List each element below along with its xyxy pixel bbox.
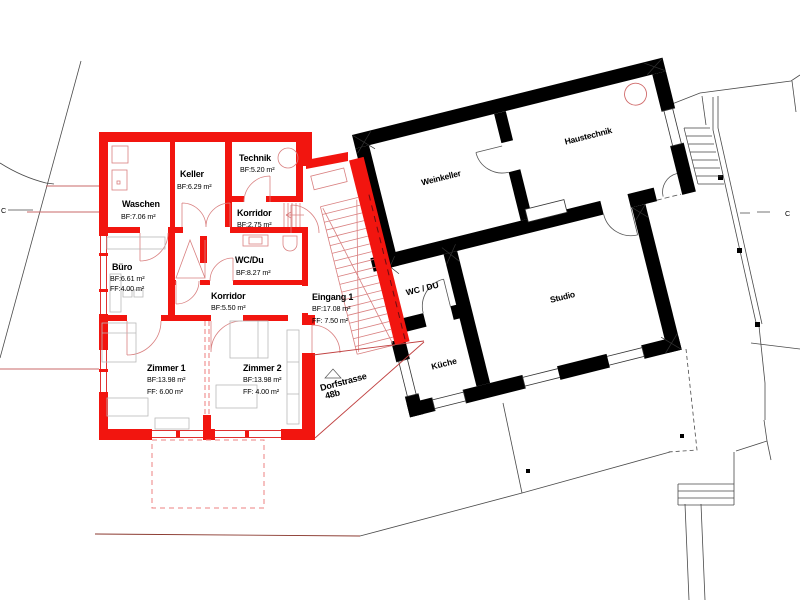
svg-text:BF:6.61 m²: BF:6.61 m² xyxy=(110,274,145,283)
svg-text:Büro: Büro xyxy=(112,262,133,272)
svg-text:C: C xyxy=(1,206,6,215)
svg-text:BF:13.98 m²: BF:13.98 m² xyxy=(147,375,186,384)
svg-text:Zimmer 2: Zimmer 2 xyxy=(243,363,282,373)
svg-text:FF: 6.00 m²: FF: 6.00 m² xyxy=(147,387,184,396)
svg-text:FF:4.00 m²: FF:4.00 m² xyxy=(110,284,145,293)
svg-text:BF:8.27 m²: BF:8.27 m² xyxy=(236,268,271,277)
svg-text:WC/Du: WC/Du xyxy=(235,255,264,265)
svg-text:BF:5.50 m²: BF:5.50 m² xyxy=(211,303,246,312)
svg-text:Technik: Technik xyxy=(239,153,272,163)
svg-text:Korridor: Korridor xyxy=(211,291,246,301)
svg-text:Zimmer 1: Zimmer 1 xyxy=(147,363,186,373)
svg-text:BF:2.75 m²: BF:2.75 m² xyxy=(237,220,272,229)
svg-text:Keller: Keller xyxy=(180,169,205,179)
svg-text:Waschen: Waschen xyxy=(122,199,160,209)
svg-text:FF: 7.50 m²: FF: 7.50 m² xyxy=(312,316,349,325)
svg-text:C: C xyxy=(785,209,790,218)
svg-text:BF:7.06 m²: BF:7.06 m² xyxy=(121,212,156,221)
svg-text:Korridor: Korridor xyxy=(237,208,272,218)
svg-text:Eingang 1: Eingang 1 xyxy=(312,292,353,302)
svg-text:BF:17.08 m²: BF:17.08 m² xyxy=(312,304,351,313)
svg-text:BF:6.29 m²: BF:6.29 m² xyxy=(177,182,212,191)
svg-text:BF:5.20 m²: BF:5.20 m² xyxy=(240,165,275,174)
svg-text:FF: 4.00 m²: FF: 4.00 m² xyxy=(243,387,280,396)
svg-text:BF:13.98 m²: BF:13.98 m² xyxy=(243,375,282,384)
